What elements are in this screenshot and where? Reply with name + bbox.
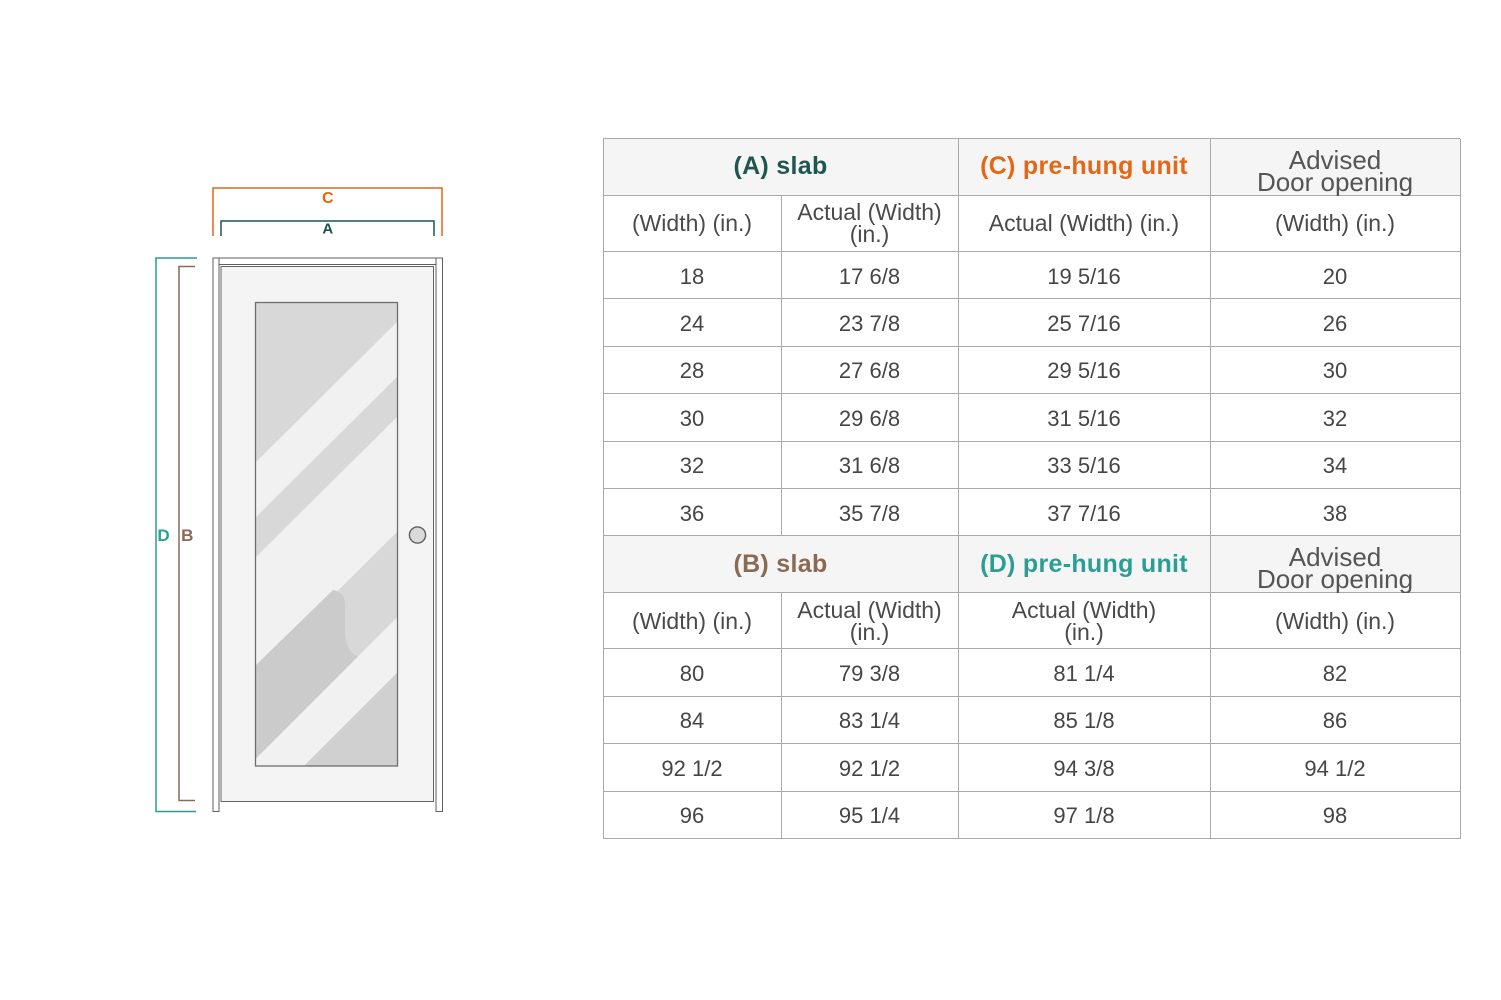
svg-text:A: A [322, 221, 333, 238]
svg-text:B: B [181, 526, 193, 545]
svg-text:C: C [322, 190, 334, 207]
svg-text:D: D [157, 526, 169, 545]
